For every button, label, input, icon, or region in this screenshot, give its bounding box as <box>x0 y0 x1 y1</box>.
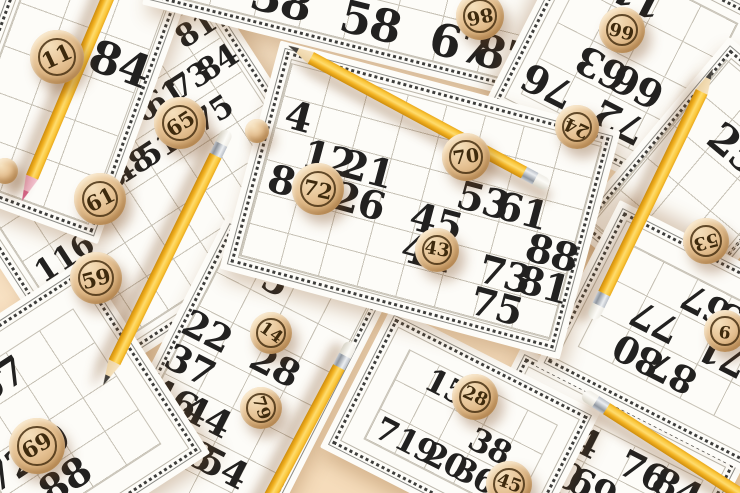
wooden-token-11: 11 <box>30 30 84 84</box>
token-number: 72 <box>287 158 349 220</box>
token-number: 79 <box>234 381 288 435</box>
token-number: 24 <box>548 98 606 156</box>
token-number: 61 <box>65 164 135 234</box>
token-number: 66 <box>594 2 650 58</box>
token-number: 9 <box>701 307 740 354</box>
wooden-token-61: 61 <box>74 173 126 225</box>
wooden-token-70: 70 <box>442 133 490 181</box>
token-number: 28 <box>444 366 505 427</box>
wooden-token-43: 43 <box>415 228 459 272</box>
wooden-token-28: 28 <box>452 374 498 420</box>
wooden-token-72: 72 <box>292 163 344 215</box>
wooden-token-59: 59 <box>70 252 122 304</box>
wooden-token-69: 69 <box>9 418 65 474</box>
token-number: 70 <box>439 130 493 184</box>
wooden-token-65: 65 <box>154 97 206 149</box>
token-number: 11 <box>21 21 93 93</box>
token-number: 69 <box>0 408 75 484</box>
wooden-token-blank <box>245 119 269 143</box>
token-number: 86 <box>452 0 509 44</box>
token-number: 43 <box>412 225 463 276</box>
token-number: 65 <box>144 87 216 159</box>
token-number: 53 <box>678 213 734 269</box>
wooden-token-45: 45 <box>486 461 532 493</box>
token-number: 14 <box>242 304 300 362</box>
wooden-token-24: 24 <box>555 105 599 149</box>
token-number: 59 <box>64 246 128 310</box>
wooden-token-53: 53 <box>683 218 729 264</box>
bingo-flatlay-photo: 8150617384243348517511684385867877276666… <box>0 0 740 493</box>
wooden-token-66: 66 <box>599 7 645 53</box>
token-number: 45 <box>480 455 539 493</box>
wooden-token-9: 9 <box>704 310 740 352</box>
wooden-token-86: 86 <box>456 0 504 40</box>
wooden-token-blank <box>0 158 18 184</box>
wooden-token-14: 14 <box>250 312 292 354</box>
wooden-token-79: 79 <box>240 387 282 429</box>
